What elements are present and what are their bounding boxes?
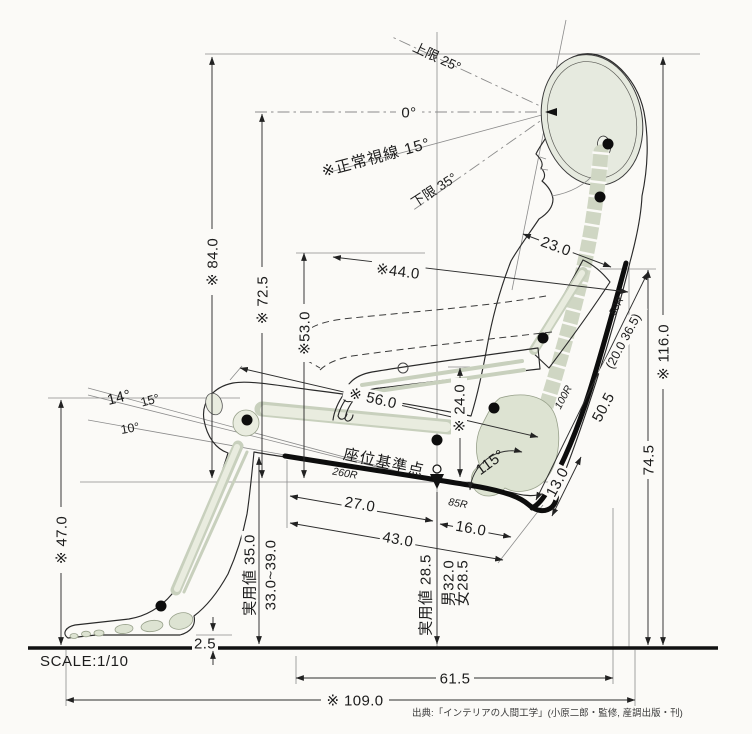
dim-head-to-back: 23.0 xyxy=(538,233,573,260)
dim-ref-to-back: 16.0 xyxy=(454,518,487,540)
dim-seat-front-range: 33.0~39.0 xyxy=(262,540,279,611)
source-citation: 出典:「インテリアの人間工学」(小原二郎・監修, 産調出版・刊) xyxy=(412,707,683,719)
dim-stature: ※ 116.0 xyxy=(655,324,672,380)
dim-seat-depth-front: 27.0 xyxy=(343,494,376,516)
scale-label: SCALE:1/10 xyxy=(40,653,129,670)
seat-rear-radius-label: 85R xyxy=(447,496,468,511)
sight-zero-label: 0° xyxy=(401,104,416,121)
dim-back-top-height: 74.5 xyxy=(640,445,657,476)
seated-figure-diagram: ※ 84.0 ※ 72.5 ※53.0 ※ 47.0 実用値 35.0 33.0… xyxy=(0,0,752,734)
dim-knee-height: ※ 47.0 xyxy=(53,516,70,564)
thigh-angle-10-label: 10° xyxy=(120,420,141,437)
patella xyxy=(203,391,225,417)
sight-normal-label: ※正常視線 15° xyxy=(320,134,433,180)
dim-heel-height: 2.5 xyxy=(194,635,216,652)
fibula xyxy=(184,452,247,592)
dim-total-span: ※ 109.0 xyxy=(326,692,383,709)
dim-arm-reach: ※44.0 xyxy=(375,261,421,283)
back-upper-radius-label: 50R xyxy=(607,295,627,318)
dim-ref-height-female: 女28.5 xyxy=(453,560,471,606)
dim-elbow-height: ※ 24.0 xyxy=(451,384,468,432)
dim-eye-height: ※ 72.5 xyxy=(254,276,271,324)
dim-desk-height: ※53.0 xyxy=(296,311,313,355)
dim-back-to-front-span: 61.5 xyxy=(440,670,471,687)
human-figure xyxy=(65,45,655,638)
dim-ref-height: 実用値 28.5 xyxy=(417,554,434,636)
ergonomics-diagram-page: ※ 84.0 ※ 72.5 ※53.0 ※ 47.0 実用値 35.0 33.0… xyxy=(0,0,752,734)
dim-seat-front-height: 実用値 35.0 xyxy=(241,534,258,616)
seat-reference-marker xyxy=(430,465,444,489)
dim-sitting-height: ※ 84.0 xyxy=(204,238,221,286)
dim-seat-depth: 43.0 xyxy=(381,529,414,551)
sight-lower-label: 下限 35° xyxy=(409,170,460,210)
heel-bone xyxy=(167,610,194,632)
raised-arm-dashed-upper xyxy=(308,296,546,330)
